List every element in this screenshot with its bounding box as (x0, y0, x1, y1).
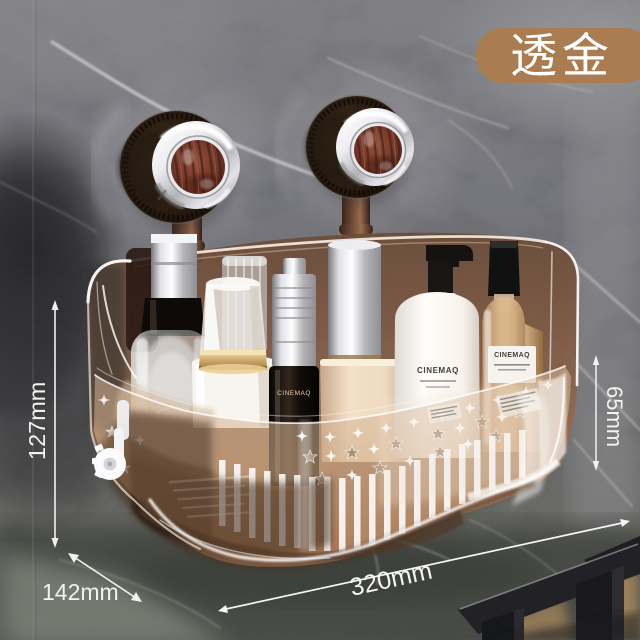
svg-text:65mm: 65mm (602, 386, 627, 447)
svg-text:CINEMAQ: CINEMAQ (494, 352, 530, 359)
svg-text:127mm: 127mm (24, 382, 50, 460)
svg-text:透金: 透金 (510, 29, 614, 82)
svg-text:CINEMAQ: CINEMAQ (417, 366, 459, 375)
svg-text:142mm: 142mm (42, 579, 119, 605)
svg-text:CINEMAQ: CINEMAQ (277, 390, 311, 397)
